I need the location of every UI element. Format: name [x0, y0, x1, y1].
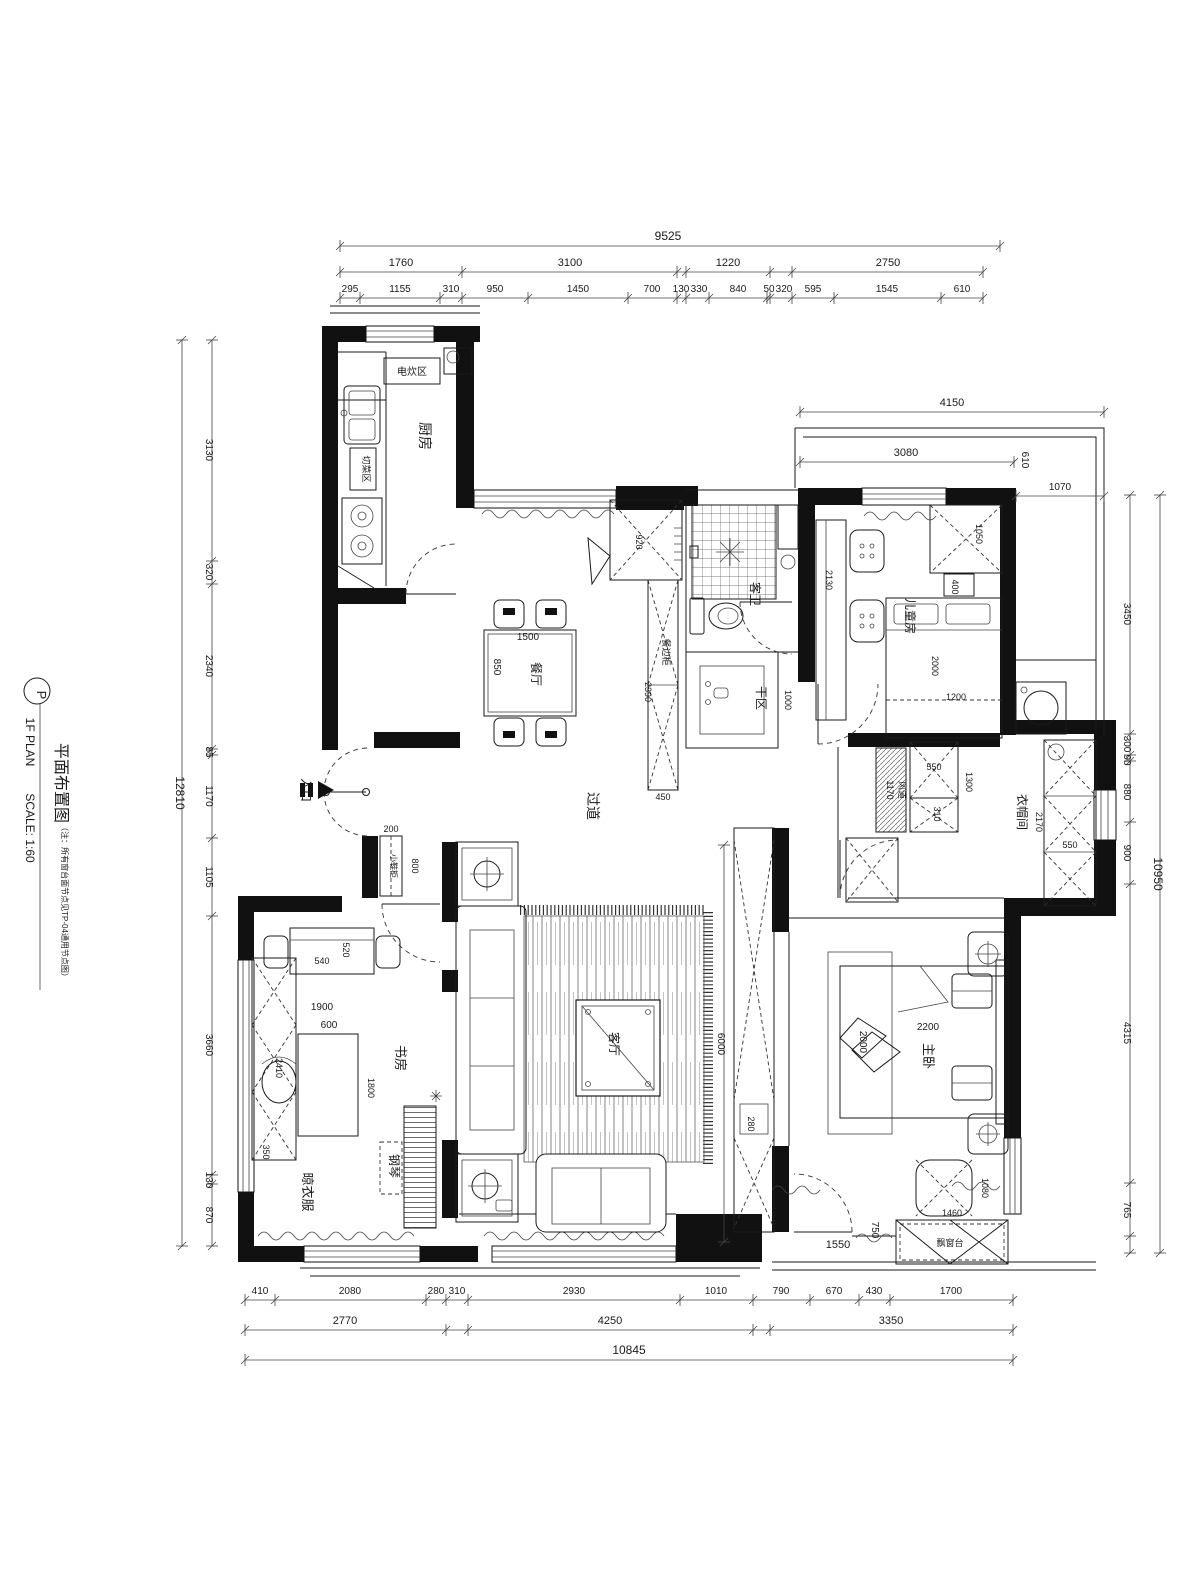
dim-520: 520: [341, 942, 351, 957]
chain-top-detail-label: 50: [763, 284, 775, 295]
chain-right-overall-label: 10950: [1151, 857, 1165, 891]
label-bay-window: 飘窗台: [936, 1237, 963, 1248]
dim-400: 400: [950, 579, 960, 594]
dim-750: 750: [869, 1222, 880, 1239]
dim-1500: 1500: [517, 632, 540, 643]
chain-right-detail-label: 765: [1121, 1202, 1132, 1219]
dim-1050: 1050: [974, 524, 984, 544]
chain-right-detail-label: 900: [1121, 845, 1132, 862]
chain-top-detail-label: 1155: [389, 284, 411, 295]
chain-top-detail-label: 320: [776, 284, 793, 295]
living-room-furniture: [456, 828, 774, 1232]
chain-bottom-detail-label: 1700: [940, 1286, 963, 1297]
dim-2170: 2170: [1034, 812, 1044, 832]
chain-top-mid: 1760310012202750: [336, 257, 987, 278]
chain-top-detail-label: 950: [487, 284, 504, 295]
dim-2000-master: 2000: [857, 1031, 868, 1054]
chain-left-detail-label: 85: [203, 746, 214, 758]
chain-left-detail-label: 320: [203, 564, 214, 581]
room-kitchen: 厨房: [417, 422, 433, 450]
dim-1460: 1460: [942, 1208, 962, 1218]
chain-balcony-4150: 4150: [796, 397, 1108, 418]
dim-1080: 1080: [980, 1178, 990, 1198]
room-corridor: 过道: [585, 792, 601, 820]
chain-left-detail-label: 130: [203, 1172, 214, 1189]
room-kids: 儿童房: [903, 598, 918, 634]
title-line1: 1F PLAN: [23, 718, 37, 767]
chain-left-detail-label: 2340: [203, 655, 214, 678]
chain-top-detail-label: 330: [691, 284, 708, 295]
label-sideboard: 餐边柜: [661, 638, 672, 665]
label-entrance: 入口: [299, 778, 313, 802]
chain-top-overall: 9525: [336, 229, 1004, 252]
dim-850: 850: [491, 659, 502, 676]
chain-top-detail-label: 700: [644, 284, 661, 295]
room-guest-bath: 客卫: [748, 582, 763, 606]
chain-balcony-3080: 3080610: [796, 447, 1030, 469]
kitchen-fixtures: [338, 348, 472, 588]
dim-310: 310: [932, 806, 942, 821]
label-air-duct: 风道: [897, 781, 908, 799]
dim-550-a: 550: [926, 762, 941, 772]
chain-left-overall-label: 12810: [173, 776, 187, 810]
title-scale: SCALE: 1:60: [23, 793, 37, 863]
chain-top-mid-label: 2750: [876, 257, 900, 269]
floorplan-sheet: 9525176031001220275029511553109501450700…: [0, 0, 1200, 1575]
chain-top-detail-label: 840: [730, 284, 747, 295]
chain-right-detail-label: 4315: [1121, 1022, 1132, 1045]
chain-balcony-3080-label: 610: [1019, 452, 1030, 469]
chain-bottom-detail-label: 1010: [705, 1286, 728, 1297]
chain-top-mid-label: 3100: [558, 257, 582, 269]
chain-bottom-detail-label: 280: [428, 1286, 445, 1297]
floorplan-drawing: 9525176031001220275029511553109501450700…: [0, 0, 1200, 1575]
chain-bottom-mid-label: 2770: [333, 1315, 357, 1327]
dim-2390: 2390: [643, 682, 653, 702]
dim-600: 600: [321, 1020, 338, 1031]
chain-balcony-1070-label: 1070: [1049, 482, 1072, 493]
chain-top-detail-label: 295: [342, 284, 359, 295]
room-study: 书房: [393, 1045, 408, 1071]
chain-bottom-mid-label: 3350: [879, 1315, 903, 1327]
dim-920: 920: [634, 534, 644, 549]
chain-bottom-detail-label: 670: [826, 1286, 843, 1297]
chain-bottom-overall: 10845: [241, 1343, 1017, 1366]
chain-top-detail-label: 595: [805, 284, 822, 295]
dim-350: 350: [261, 1144, 271, 1159]
chain-balcony-4150-label: 4150: [940, 397, 964, 409]
master-furniture: [828, 932, 1008, 1216]
room-master: 主卧: [921, 1043, 936, 1069]
dim-2130: 2130: [824, 570, 834, 590]
dim-1900: 1900: [311, 1002, 334, 1013]
chain-left-detail-label: 1105: [203, 866, 214, 888]
room-dry-area: 干区: [754, 686, 768, 710]
chain-living-6000-label: 6000: [715, 1033, 726, 1056]
dim-2000-kids: 2000: [930, 656, 940, 676]
dim-2410: 2410: [274, 1058, 284, 1078]
chain-top-detail-label: 610: [954, 284, 971, 295]
dim-550-b: 550: [1062, 840, 1077, 850]
label-laundry: 晾衣服: [300, 1172, 315, 1211]
chain-bottom-mid: 277042503350: [241, 1315, 1017, 1336]
dim-280: 280: [746, 1116, 756, 1131]
dim-800: 800: [410, 858, 420, 873]
chain-right-overall: 10950: [1151, 491, 1166, 1257]
chain-bottom-mid-label: 4250: [598, 1315, 622, 1327]
chain-top-mid-label: 1220: [716, 257, 740, 269]
dim-1550: 1550: [826, 1239, 850, 1251]
dim-1300: 1300: [964, 772, 974, 792]
chain-right-detail: 3450300908809004315765: [1121, 491, 1136, 1257]
chain-bottom-detail-label: 410: [252, 1286, 269, 1297]
label-piano: 钢琴: [387, 1154, 401, 1178]
bathroom-fixtures: [690, 505, 798, 634]
cloakroom-wardrobes: [846, 740, 1096, 906]
chain-bottom-detail-label: 430: [866, 1286, 883, 1297]
chain-balcony-1070: 1070: [1012, 482, 1108, 502]
title-marker-letter: P: [34, 691, 49, 700]
label-cutting-zone: 切菜区: [361, 455, 372, 482]
chain-top-detail-label: 130: [673, 284, 690, 295]
dim-540: 540: [314, 956, 329, 966]
chain-balcony-3080-label: 3080: [894, 447, 918, 459]
chain-top-overall-label: 9525: [655, 229, 682, 243]
chain-left-detail-label: 3660: [203, 1034, 214, 1057]
label-shoe-cabinet: 小鞋柜: [389, 854, 399, 878]
room-living: 客厅: [607, 1032, 622, 1056]
chain-top-detail-label: 1450: [567, 284, 590, 295]
chain-right-detail-label: 880: [1121, 784, 1132, 801]
title-cn: 平面布置图: [52, 743, 70, 823]
chain-left-detail-label: 3130: [203, 439, 214, 462]
chain-right-detail-label: 90: [1121, 754, 1132, 766]
dim-1800: 1800: [366, 1078, 376, 1098]
chain-bottom-detail-label: 310: [449, 1286, 466, 1297]
chain-left-detail-label: 1170: [203, 785, 214, 807]
dim-1000: 1000: [783, 690, 793, 710]
label-cooking-zone: 电炊区: [397, 365, 427, 378]
chain-right-detail-label: 3450: [1121, 603, 1132, 626]
dim-2200: 2200: [917, 1022, 940, 1033]
dim-200: 200: [383, 824, 398, 834]
chain-top-detail-label: 310: [443, 284, 460, 295]
chain-top-detail-label: 1545: [876, 284, 899, 295]
room-dining: 餐厅: [529, 662, 544, 686]
room-cloakroom: 衣帽间: [1015, 794, 1030, 830]
chain-bottom-detail-label: 790: [773, 1286, 790, 1297]
chain-bottom-detail-label: 2930: [563, 1286, 586, 1297]
chain-right-detail-label: 300: [1121, 736, 1132, 753]
title-note: （注：所有窗台面节点见TP-04通用节点图）: [60, 823, 70, 981]
chain-left-detail: 3130320234085117011053660130870: [203, 336, 218, 1250]
dim-450: 450: [655, 792, 670, 802]
chain-left-overall: 12810: [173, 336, 188, 1250]
chain-bottom-detail: 4102080280310293010107906704301700: [241, 1286, 1017, 1306]
chain-bottom-overall-label: 10845: [612, 1343, 646, 1357]
dim-1170: 1170: [885, 780, 895, 799]
chain-top-detail: 2951155310950145070013033084050320595154…: [336, 284, 987, 304]
entry-arrow: [300, 781, 402, 896]
dim-1200: 1200: [946, 692, 966, 702]
chain-bottom-detail-label: 2080: [339, 1286, 362, 1297]
chain-top-mid-label: 1760: [389, 257, 413, 269]
chain-left-detail-label: 870: [203, 1207, 214, 1224]
chain-living-6000: 6000: [715, 841, 730, 1246]
